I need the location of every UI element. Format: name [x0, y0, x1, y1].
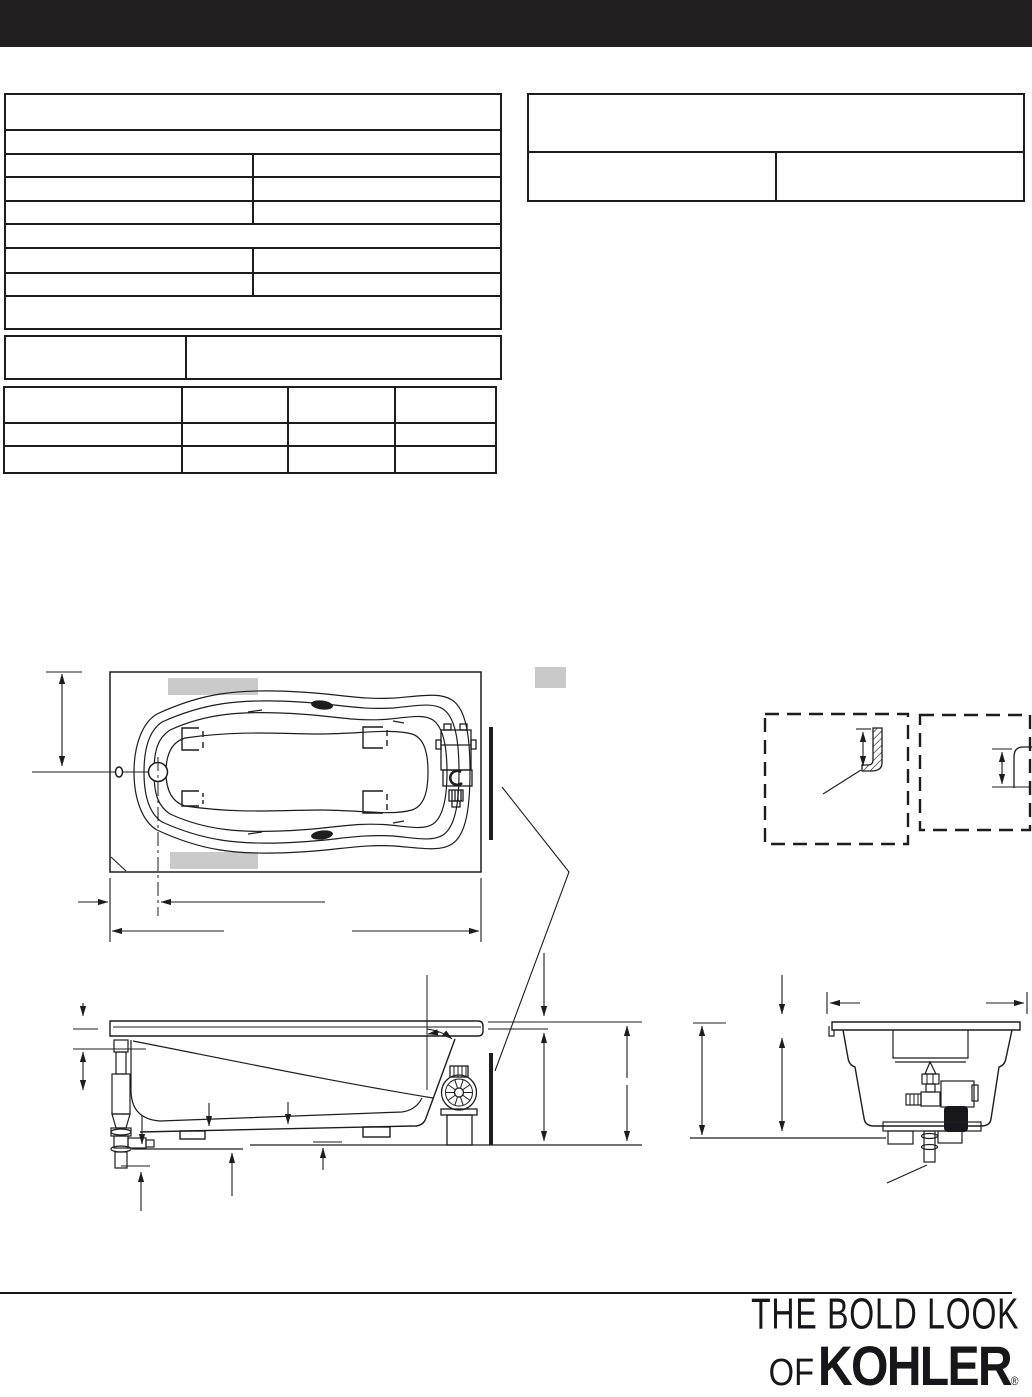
grab-pad-top — [168, 678, 258, 695]
logo-tagline-of: OF — [769, 1352, 814, 1394]
note-marker — [535, 667, 566, 688]
logo-tagline-line1: THE BOLD LOOK — [751, 1293, 1019, 1336]
rim-profile-detail — [920, 715, 1032, 830]
grab-pad-bottom — [170, 852, 258, 869]
drain-plan — [32, 757, 168, 916]
drain-end — [883, 1062, 981, 1162]
bath-end-section — [690, 975, 1027, 1183]
side-dimensions — [73, 953, 642, 1211]
spec-sheet-page: { "header": { "bar_color": "#221e1f" }, … — [0, 0, 1032, 1370]
technical-drawing — [0, 0, 1032, 1370]
pump-side — [441, 1066, 477, 1145]
jet-brackets — [182, 727, 387, 813]
leader-wall-line — [495, 787, 569, 1071]
kohler-logo: THE BOLD LOOK OF KOHLER® — [684, 1296, 1019, 1394]
bath-plan-view — [32, 667, 566, 942]
logo-brand: KOHLER — [818, 1334, 1011, 1397]
rim-flange-detail — [765, 714, 908, 844]
slope-angle-dim — [427, 975, 452, 1090]
jet-top — [311, 699, 334, 711]
bath-side-elevation — [73, 953, 642, 1211]
end-dimensions — [693, 975, 1027, 1135]
registered-mark-icon: ® — [1011, 1374, 1019, 1388]
leader-drain — [887, 1165, 927, 1183]
